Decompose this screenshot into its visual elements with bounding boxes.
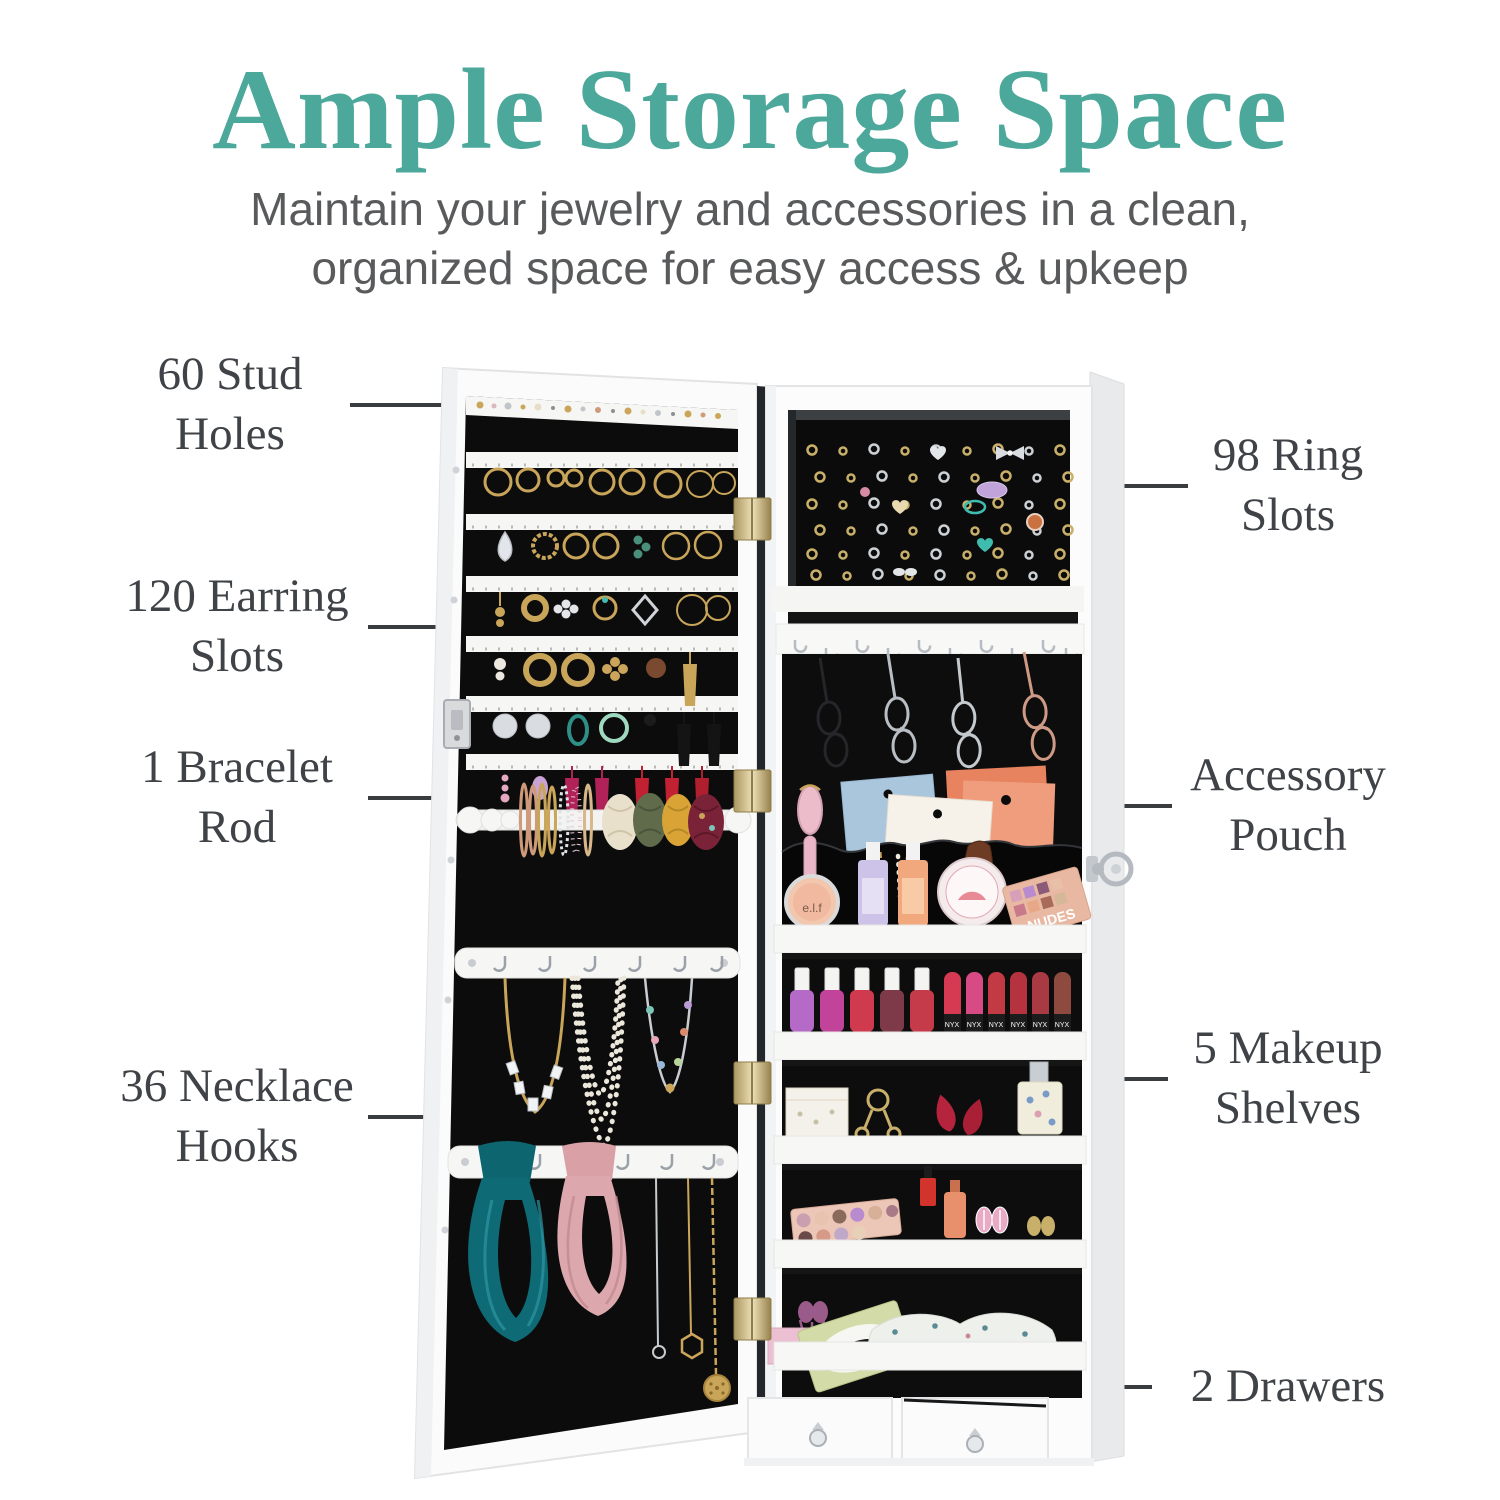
callout-makeup-shelves: 5 Makeup Shelves bbox=[1133, 1019, 1443, 1138]
left-door bbox=[415, 368, 757, 1478]
ring-slots-panel bbox=[788, 410, 1073, 586]
floral-box bbox=[786, 1088, 848, 1136]
lip-crayon-label: NYX bbox=[1011, 1022, 1026, 1029]
shelf-lip-5 bbox=[774, 1342, 1086, 1370]
necklace-hook-bar-top bbox=[455, 948, 740, 978]
callout-bracelet-rod: 1 Bracelet Rod bbox=[82, 738, 392, 857]
callout-stud-holes: 60 Stud Holes bbox=[75, 345, 385, 464]
blush-brand-label: e.l.f bbox=[802, 901, 822, 915]
product-infographic: Ample Storage Space Maintain your jewelr… bbox=[0, 0, 1500, 1500]
cabinet-body: avatāra bbox=[744, 372, 1131, 1466]
lip-crayon-label: NYX bbox=[967, 1022, 982, 1029]
jewelry-armoire-illustration: avatāra bbox=[400, 340, 1160, 1490]
ring-shelf bbox=[772, 586, 1084, 612]
callout-necklace-hooks: 36 Necklace Hooks bbox=[82, 1057, 392, 1176]
door-lock bbox=[444, 700, 470, 748]
shelf-lip-1 bbox=[774, 925, 1086, 953]
mani-tin bbox=[938, 858, 1006, 926]
lip-crayon-label: NYX bbox=[945, 1022, 960, 1029]
lip-crayon-label: NYX bbox=[1055, 1022, 1070, 1029]
shelf-lip-2 bbox=[774, 1032, 1086, 1060]
callout-accessory-pouch: Accessory Pouch bbox=[1133, 746, 1443, 865]
page-subtitle: Maintain your jewelry and accessories in… bbox=[0, 180, 1500, 298]
lip-crayon-label: NYX bbox=[1033, 1022, 1048, 1029]
shelf-lip-3 bbox=[774, 1136, 1086, 1164]
page-title: Ample Storage Space bbox=[0, 44, 1500, 177]
shelf-lip-4 bbox=[774, 1240, 1086, 1268]
cabinet-side-panel bbox=[1090, 372, 1124, 1462]
lip-crayon-label: NYX bbox=[989, 1022, 1004, 1029]
callout-earring-slots: 120 Earring Slots bbox=[82, 567, 392, 686]
callout-drawers: 2 Drawers bbox=[1133, 1357, 1443, 1417]
